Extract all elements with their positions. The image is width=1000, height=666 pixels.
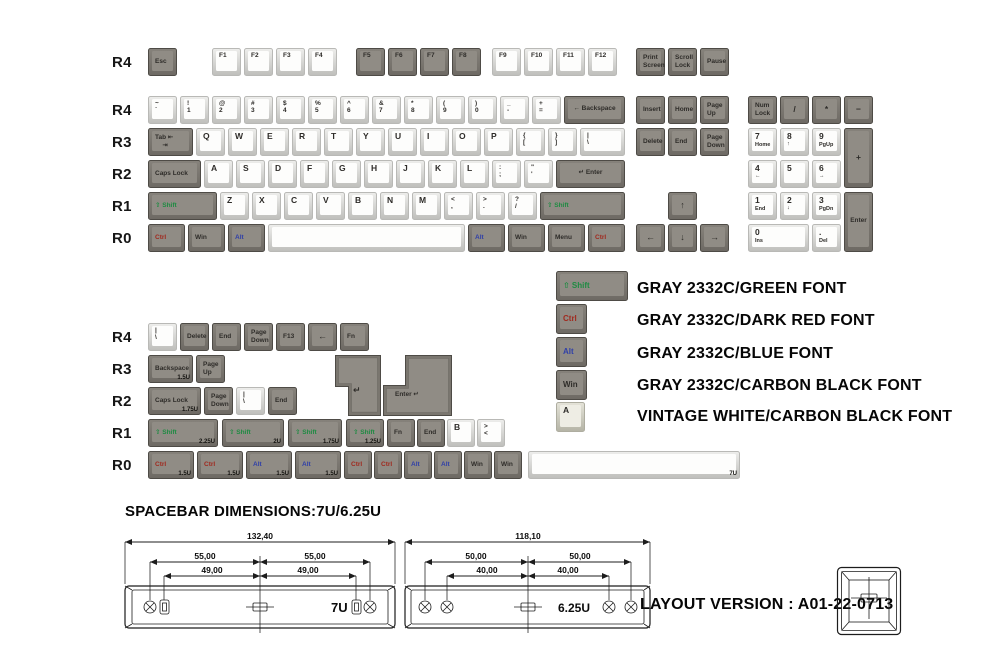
key-8: *8 bbox=[404, 96, 433, 124]
key-f13: F13 bbox=[276, 323, 305, 351]
key-f2: F2 bbox=[244, 48, 273, 76]
key-print-screen: PrintScreen bbox=[636, 48, 665, 76]
key-alt: Alt1.5U bbox=[295, 451, 341, 479]
svg-text:49,00: 49,00 bbox=[201, 565, 223, 575]
key-page-up: PageUp bbox=[700, 96, 729, 124]
row-label-r3: R3 bbox=[112, 134, 146, 151]
legend-entry-green-font: GRAY 2332C/GREEN FONT bbox=[637, 280, 847, 298]
key-t: T bbox=[324, 128, 353, 156]
row-label-r1: R1 bbox=[112, 425, 146, 442]
row-label-r4: R4 bbox=[112, 329, 146, 346]
key-alt: Alt bbox=[228, 224, 265, 252]
row-label-r4: R4 bbox=[112, 54, 146, 71]
key-delete: Delete bbox=[636, 128, 665, 156]
key-symbol: * bbox=[812, 96, 841, 124]
key-f4: F4 bbox=[308, 48, 337, 76]
key-l: L bbox=[460, 160, 489, 188]
key-symbol: + bbox=[844, 128, 873, 188]
key-o: O bbox=[452, 128, 481, 156]
key-0-ins: 0Ins bbox=[748, 224, 809, 252]
key-f6: F6 bbox=[388, 48, 417, 76]
key-caps-lock: Caps Lock bbox=[148, 160, 201, 188]
key-j: J bbox=[396, 160, 425, 188]
svg-text:7U: 7U bbox=[331, 600, 348, 615]
spacebar-7u-diagram: 132,40 55,00 55,00 49,00 49,00 7U bbox=[118, 530, 403, 642]
key-fn: Fn bbox=[340, 323, 369, 351]
key-esc: Esc bbox=[148, 48, 177, 76]
key-symbol: ↓ bbox=[668, 224, 697, 252]
key-menu: Menu bbox=[548, 224, 585, 252]
key-caps-lock: Caps Lock1.75U bbox=[148, 387, 201, 415]
key-f12: F12 bbox=[588, 48, 617, 76]
key-e: E bbox=[260, 128, 289, 156]
key-symbol: ↑ bbox=[668, 192, 697, 220]
key-symbol: >. bbox=[476, 192, 505, 220]
svg-text:50,00: 50,00 bbox=[569, 551, 591, 561]
key-home: Home bbox=[668, 96, 697, 124]
key-s: S bbox=[236, 160, 265, 188]
key-symbol: ~` bbox=[148, 96, 177, 124]
key-symbol: += bbox=[532, 96, 561, 124]
key-shift: ⇧ Shift bbox=[148, 192, 217, 220]
key-d: D bbox=[268, 160, 297, 188]
key-scroll-lock: ScrollLock bbox=[668, 48, 697, 76]
svg-text:40,00: 40,00 bbox=[557, 565, 579, 575]
sample-key-a: A bbox=[556, 402, 585, 432]
row-label-r3: R3 bbox=[112, 361, 146, 378]
key-pause: Pause bbox=[700, 48, 729, 76]
keycap-bottom-icon bbox=[835, 565, 903, 637]
key-f1: F1 bbox=[212, 48, 241, 76]
key-symbol: |\ bbox=[148, 323, 177, 351]
legend-entry-carbon-black-font: GRAY 2332C/CARBON BLACK FONT bbox=[637, 377, 922, 395]
key-big-ass-enter: Enter ↵ bbox=[383, 355, 452, 416]
key-ctrl: Ctrl bbox=[148, 224, 185, 252]
key-end: End bbox=[668, 128, 697, 156]
key-enter: Enter bbox=[844, 192, 873, 252]
svg-text:49,00: 49,00 bbox=[297, 565, 319, 575]
key-iso-enter: ↵ bbox=[335, 355, 381, 416]
key-f: F bbox=[300, 160, 329, 188]
key-x: X bbox=[252, 192, 281, 220]
key-backspace: ← Backspace bbox=[564, 96, 625, 124]
sample-key-ctrl: Ctrl bbox=[556, 304, 587, 334]
row-label-r2: R2 bbox=[112, 166, 146, 183]
key-symbol: → bbox=[700, 224, 729, 252]
key-k: K bbox=[428, 160, 457, 188]
key-1: !1 bbox=[180, 96, 209, 124]
key-0: )0 bbox=[468, 96, 497, 124]
key-g: G bbox=[332, 160, 361, 188]
row-label-r2: R2 bbox=[112, 393, 146, 410]
key-shift: ⇧ Shift2U bbox=[222, 419, 284, 447]
key-z: Z bbox=[220, 192, 249, 220]
key-2: 2↓ bbox=[780, 192, 809, 220]
key-backspace: Backspace1.5U bbox=[148, 355, 193, 383]
legend-entry-vintage-white: VINTAGE WHITE/CARBON BLACK FONT bbox=[637, 408, 952, 426]
key-ctrl: Ctrl bbox=[588, 224, 625, 252]
key-ctrl: Ctrl1.5U bbox=[148, 451, 194, 479]
key-symbol: / bbox=[780, 96, 809, 124]
key-w: W bbox=[228, 128, 257, 156]
key-spacebar-7u: 7U bbox=[528, 451, 740, 479]
key-symbol: }] bbox=[548, 128, 577, 156]
key-page-down: PageDown bbox=[700, 128, 729, 156]
key-f7: F7 bbox=[420, 48, 449, 76]
key-y: Y bbox=[356, 128, 385, 156]
key-a: A bbox=[204, 160, 233, 188]
key-ctrl: Ctrl bbox=[374, 451, 402, 479]
svg-text:132,40: 132,40 bbox=[247, 531, 273, 541]
key-7-home: 7Home bbox=[748, 128, 777, 156]
key-shift: ⇧ Shift1.25U bbox=[346, 419, 384, 447]
key-symbol: ← bbox=[636, 224, 665, 252]
key-alt: Alt bbox=[434, 451, 462, 479]
key-f5: F5 bbox=[356, 48, 385, 76]
key-del: .Del bbox=[812, 224, 841, 252]
key-page-down: PageDown bbox=[244, 323, 273, 351]
row-label-r0: R0 bbox=[112, 457, 146, 474]
key-delete: Delete bbox=[180, 323, 209, 351]
key-fn: Fn bbox=[387, 419, 415, 447]
key-h: H bbox=[364, 160, 393, 188]
key-7: &7 bbox=[372, 96, 401, 124]
key-6: ^6 bbox=[340, 96, 369, 124]
key-p: P bbox=[484, 128, 513, 156]
key-c: C bbox=[284, 192, 313, 220]
key-ctrl: Ctrl bbox=[344, 451, 372, 479]
key-end: End bbox=[268, 387, 297, 415]
key-m: M bbox=[412, 192, 441, 220]
key-5: 5 bbox=[780, 160, 809, 188]
key-8: 8↑ bbox=[780, 128, 809, 156]
key-b: B bbox=[447, 419, 475, 447]
key-page-up: PageUp bbox=[196, 355, 225, 383]
key-q: Q bbox=[196, 128, 225, 156]
key-r: R bbox=[292, 128, 321, 156]
svg-text:50,00: 50,00 bbox=[465, 551, 487, 561]
key-f3: F3 bbox=[276, 48, 305, 76]
legend-entry-blue-font: GRAY 2332C/BLUE FONT bbox=[637, 345, 833, 363]
svg-text:40,00: 40,00 bbox=[476, 565, 498, 575]
key-f8: F8 bbox=[452, 48, 481, 76]
key-win: Win bbox=[494, 451, 522, 479]
key-f9: F9 bbox=[492, 48, 521, 76]
key-9: (9 bbox=[436, 96, 465, 124]
key-alt: Alt bbox=[468, 224, 505, 252]
key-symbol: |\ bbox=[580, 128, 625, 156]
key-symbol: >< bbox=[477, 419, 505, 447]
key-page-down: PageDown bbox=[204, 387, 233, 415]
key-5: %5 bbox=[308, 96, 337, 124]
row-label-r1: R1 bbox=[112, 198, 146, 215]
key-9-pgup: 9PgUp bbox=[812, 128, 841, 156]
key-f11: F11 bbox=[556, 48, 585, 76]
key-shift: ⇧ Shift1.75U bbox=[288, 419, 342, 447]
key-tab: Tab ⇤ ⇥ bbox=[148, 128, 193, 156]
sample-key-alt: Alt bbox=[556, 337, 587, 367]
key-win: Win bbox=[188, 224, 225, 252]
sample-key-win: Win bbox=[556, 370, 587, 400]
key-6: 6→ bbox=[812, 160, 841, 188]
key-i: I bbox=[420, 128, 449, 156]
key-symbol: ← bbox=[308, 323, 337, 351]
key-symbol: :; bbox=[492, 160, 521, 188]
key-insert: Insert bbox=[636, 96, 665, 124]
key-3: #3 bbox=[244, 96, 273, 124]
key-2: @2 bbox=[212, 96, 241, 124]
key-1-end: 1End bbox=[748, 192, 777, 220]
key-alt: Alt1.5U bbox=[246, 451, 292, 479]
key-symbol: |\ bbox=[236, 387, 265, 415]
key-n: N bbox=[380, 192, 409, 220]
svg-text:55,00: 55,00 bbox=[194, 551, 216, 561]
legend-entry-dark-red-font: GRAY 2332C/DARK RED FONT bbox=[637, 312, 875, 330]
svg-text:6.25U: 6.25U bbox=[558, 601, 590, 615]
key-f10: F10 bbox=[524, 48, 553, 76]
key-b: B bbox=[348, 192, 377, 220]
svg-text:55,00: 55,00 bbox=[304, 551, 326, 561]
row-label-r4: R4 bbox=[112, 102, 146, 119]
spacebar-dimensions-title: SPACEBAR DIMENSIONS:7U/6.25U bbox=[125, 503, 381, 520]
spacebar-625u-diagram: 118,10 50,00 50,00 40,00 40,00 bbox=[398, 530, 660, 642]
key-ctrl: Ctrl1.5U bbox=[197, 451, 243, 479]
key-u: U bbox=[388, 128, 417, 156]
key-symbol: <, bbox=[444, 192, 473, 220]
key-end: End bbox=[417, 419, 445, 447]
row-label-r0: R0 bbox=[112, 230, 146, 247]
key-symbol: − bbox=[844, 96, 873, 124]
key-v: V bbox=[316, 192, 345, 220]
key-enter: ↵ Enter bbox=[556, 160, 625, 188]
keycap-layout-canvas: EscF1F2F3F4F5F6F7F8F9F10F11F12PrintScree… bbox=[0, 0, 1000, 666]
key-symbol: _- bbox=[500, 96, 529, 124]
svg-text:118,10: 118,10 bbox=[515, 531, 541, 541]
key-4: $4 bbox=[276, 96, 305, 124]
key-win: Win bbox=[464, 451, 492, 479]
key-num-lock: NumLock bbox=[748, 96, 777, 124]
key-shift: ⇧ Shift2.25U bbox=[148, 419, 218, 447]
key-symbol: "' bbox=[524, 160, 553, 188]
key-shift: ⇧ Shift bbox=[540, 192, 625, 220]
key-4: 4← bbox=[748, 160, 777, 188]
key-spacebar bbox=[268, 224, 465, 252]
key-3-pgdn: 3PgDn bbox=[812, 192, 841, 220]
key-alt: Alt bbox=[404, 451, 432, 479]
key-symbol: {[ bbox=[516, 128, 545, 156]
key-symbol: ?/ bbox=[508, 192, 537, 220]
sample-key-shift: ⇧ Shift bbox=[556, 271, 628, 301]
key-end: End bbox=[212, 323, 241, 351]
key-win: Win bbox=[508, 224, 545, 252]
